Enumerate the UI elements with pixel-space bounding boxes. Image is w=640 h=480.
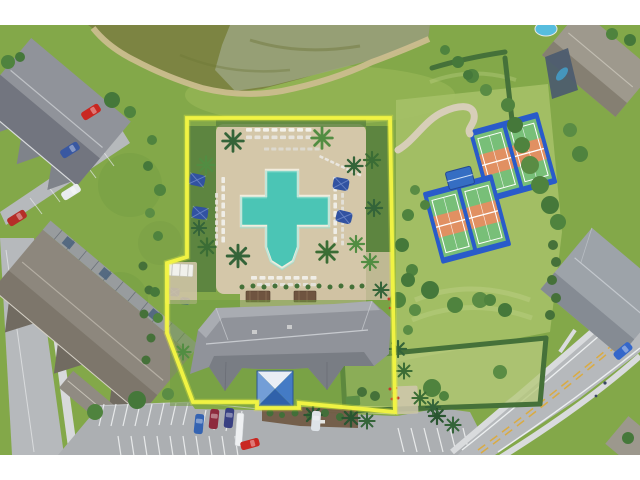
aerial-photo-screenshot [0,0,640,480]
photo-content [0,9,640,476]
photo-haze [0,25,640,455]
bottom-white-bar [0,455,640,480]
aerial-photo [0,0,640,480]
top-white-bar [0,0,640,25]
